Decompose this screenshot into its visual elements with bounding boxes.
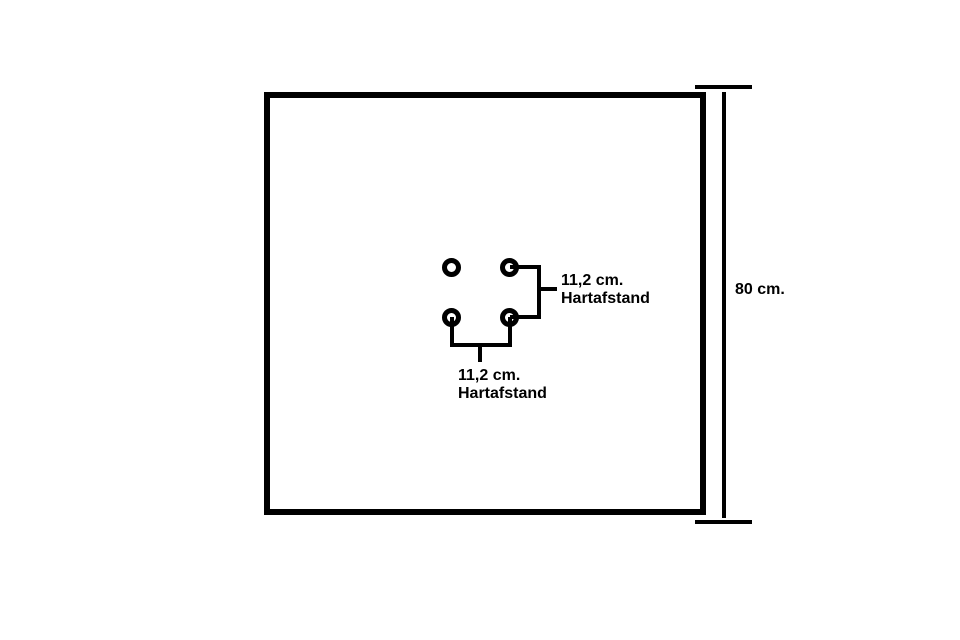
horizontal-pitch-caption: Hartafstand: [458, 385, 547, 403]
horizontal-pitch-value: 11,2 cm.: [458, 367, 547, 385]
diagram-canvas: 11,2 cm. Hartafstand 11,2 cm. Hartafstan…: [0, 0, 960, 640]
vertical-pitch-value: 11,2 cm.: [561, 272, 650, 290]
vertical-pitch-pointer: [541, 287, 557, 291]
plate-height-value: 80 cm.: [735, 281, 785, 298]
height-dimension-tick-top: [695, 85, 752, 89]
horizontal-pitch-pointer: [478, 347, 482, 362]
height-dimension-line: [722, 92, 726, 518]
plate-height-label: 80 cm.: [735, 281, 785, 299]
vertical-pitch-bracket: [537, 265, 541, 319]
hole-top-left: [442, 258, 461, 277]
vertical-pitch-label: 11,2 cm. Hartafstand: [561, 272, 650, 308]
horizontal-pitch-label: 11,2 cm. Hartafstand: [458, 367, 547, 403]
vertical-pitch-caption: Hartafstand: [561, 290, 650, 308]
height-dimension-tick-bottom: [695, 520, 752, 524]
